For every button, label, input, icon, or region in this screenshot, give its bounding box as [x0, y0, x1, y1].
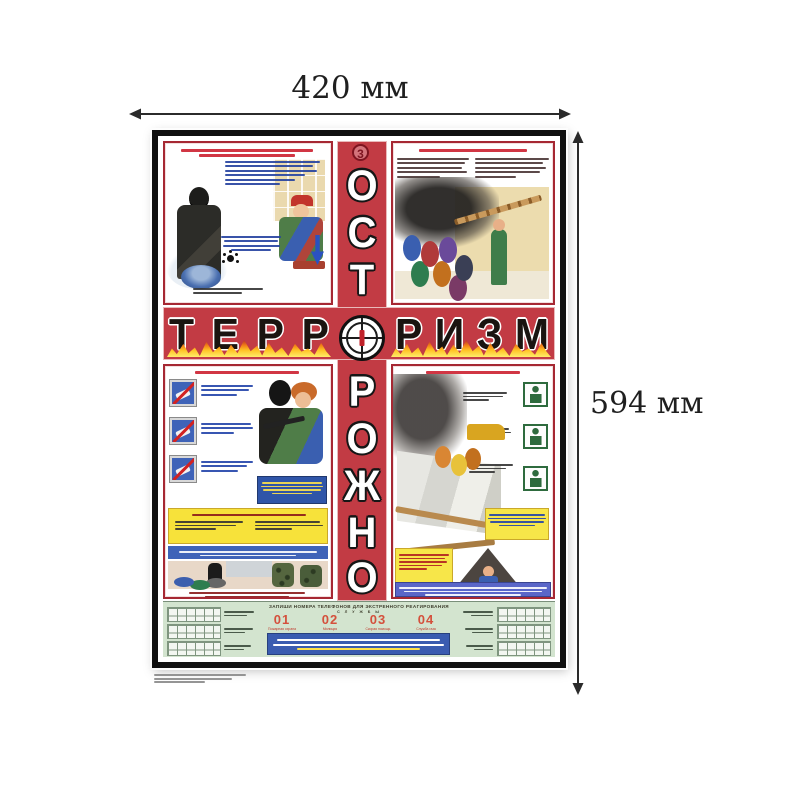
- yellow-note-box: [485, 508, 549, 540]
- service-label: Служба газа: [405, 627, 447, 631]
- text-line: [201, 465, 247, 467]
- text-line: [499, 525, 535, 527]
- width-dimension-label: 420 мм: [220, 70, 480, 106]
- caution-letter: О: [337, 554, 387, 603]
- text-line: [201, 427, 253, 429]
- terrorist-head: [269, 380, 291, 406]
- text-line: [224, 240, 278, 242]
- text-line: [255, 521, 320, 523]
- step-text: [463, 390, 507, 403]
- blue-caption-band: [168, 546, 328, 559]
- text-line: [255, 528, 292, 530]
- grid-label: [224, 609, 254, 618]
- notice-box: [267, 633, 450, 655]
- panel-hostage: [163, 364, 333, 599]
- caution-letter: Т: [337, 256, 387, 305]
- phone-grid: [497, 607, 551, 622]
- hostages-lying: [174, 577, 194, 587]
- grid-label: [224, 626, 254, 635]
- notice-line: [277, 639, 440, 641]
- text-line: [221, 236, 281, 238]
- height-arrow-icon: [569, 130, 587, 696]
- text-line: [469, 464, 513, 466]
- text-line: [201, 432, 234, 434]
- yellow-note-box: [395, 548, 453, 586]
- text-line: [397, 167, 462, 169]
- grid-label: [463, 626, 493, 635]
- service-label: Скорая помощь: [357, 627, 399, 631]
- text-line: [397, 171, 467, 173]
- text-line: [205, 596, 289, 598]
- text-line: [189, 592, 305, 594]
- caution-letter: Н: [337, 509, 387, 558]
- crowd-figures: [403, 235, 421, 261]
- text-line: [469, 468, 506, 470]
- service-item: 04 Служба газа: [405, 614, 447, 634]
- text-line: [397, 158, 469, 160]
- text-line: [466, 645, 493, 647]
- caption-text: [193, 285, 263, 297]
- excavator: [467, 424, 505, 440]
- text-line: [154, 681, 205, 683]
- text-line: [201, 470, 238, 472]
- hostage-notice-box: [257, 476, 327, 504]
- service-number: 03: [357, 614, 399, 626]
- sign-caption: [201, 420, 253, 436]
- panel-title: [413, 146, 533, 154]
- text-line: [399, 554, 449, 556]
- text-line: [225, 183, 280, 185]
- grid-label: [463, 643, 493, 652]
- prohibition-sign-icon: [170, 456, 196, 482]
- text-line: [463, 396, 503, 398]
- service-item: 02 Милиция: [309, 614, 351, 634]
- text-line: [474, 649, 494, 651]
- warning-text: [221, 233, 281, 254]
- text-line: [201, 423, 251, 425]
- service-item: 01 Пожарная охрана: [261, 614, 303, 634]
- wall-panel: [226, 561, 272, 577]
- text-line: [262, 482, 322, 484]
- text-line: [224, 615, 247, 617]
- phone-grid: [167, 607, 221, 622]
- text-line: [255, 525, 323, 527]
- text-line: [175, 528, 216, 530]
- text-line: [465, 628, 494, 630]
- prohibition-sign-icon: [170, 380, 196, 406]
- assault-scene: [168, 561, 328, 589]
- hostage-face: [295, 392, 311, 408]
- special-forces-soldier: [300, 565, 322, 587]
- panel-suspicious-object: [163, 141, 333, 305]
- service-number: 01: [261, 614, 303, 626]
- service-number: 02: [309, 614, 351, 626]
- crosshair-center-mark: [360, 330, 365, 346]
- sled: [293, 261, 325, 269]
- service-numbers-row: 01 Пожарная охрана 02 Милиция 03 Скорая …: [261, 614, 447, 634]
- rescue-pictogram-icon: [523, 466, 548, 491]
- product-photo: 420 мм 594 мм: [0, 0, 800, 800]
- publisher-imprint: [154, 672, 246, 685]
- text-line: [399, 565, 442, 567]
- text-line: [225, 161, 320, 163]
- text-line: [472, 632, 493, 634]
- service-label: Пожарная охрана: [261, 627, 303, 631]
- text-line: [154, 678, 232, 680]
- step-text: [469, 462, 513, 475]
- text-line: [397, 162, 465, 164]
- text-line: [181, 149, 313, 152]
- text-line: [193, 292, 242, 294]
- poster-sheet: 3 О С Т Р О Ж Н О Т Е Р Р Р: [152, 130, 566, 668]
- text-line: [224, 611, 254, 613]
- panel-evacuation: [391, 141, 555, 305]
- text-line: [225, 179, 295, 181]
- height-dimension-label: 594 мм: [590, 386, 703, 421]
- rescue-pictogram-icon: [523, 424, 548, 449]
- yellow-rules-band: [168, 508, 328, 544]
- panel-rubble-rescue: [391, 364, 555, 599]
- text-line: [419, 149, 527, 152]
- text-line: [223, 245, 280, 247]
- caution-letter: Ж: [337, 462, 387, 511]
- phone-grid: [497, 641, 551, 656]
- text-line: [261, 486, 324, 488]
- rule-item: [175, 519, 243, 532]
- rescue-pictogram-icon: [523, 382, 548, 407]
- text-line: [475, 167, 546, 169]
- bottom-blue-band: [395, 582, 551, 597]
- phone-grid: [167, 641, 221, 656]
- caution-band: 3 О С Т Р О Ж Н О: [337, 141, 387, 601]
- terrorist-standing: [208, 563, 222, 587]
- rescuer-head: [493, 219, 505, 231]
- panel-title: [191, 368, 303, 376]
- text-line: [175, 521, 243, 523]
- floor-illustration: [395, 271, 549, 299]
- text-line: [488, 518, 546, 520]
- text-line: [469, 471, 495, 473]
- emergency-phone-strip: ЗАПИШИ НОМЕРА ТЕЛЕФОНОВ ДЛЯ ЭКСТРЕННОГО …: [163, 601, 555, 657]
- text-line: [201, 461, 253, 463]
- text-line: [490, 521, 545, 523]
- text-line: [224, 649, 244, 651]
- grid-label: [224, 643, 254, 652]
- text-line: [399, 568, 427, 570]
- text-line: [224, 632, 245, 634]
- text-line: [192, 514, 306, 516]
- text-line: [199, 154, 294, 157]
- text-line: [201, 385, 253, 387]
- target-crosshair-icon: [339, 315, 385, 361]
- text-line: [471, 615, 494, 617]
- text-line: [425, 594, 520, 596]
- text-line: [272, 493, 313, 495]
- phone-grid: [167, 624, 221, 639]
- sign-caption: [201, 382, 253, 398]
- text-line: [399, 561, 447, 563]
- text-line: [475, 162, 543, 164]
- text-line: [225, 174, 305, 176]
- rescuer-figure: [491, 229, 507, 285]
- spider-object: [227, 255, 234, 262]
- service-item: 03 Скорая помощь: [357, 614, 399, 634]
- service-number: 04: [405, 614, 447, 626]
- collapsed-roof: [457, 548, 519, 586]
- text-line: [489, 514, 545, 516]
- grid-label: [463, 609, 493, 618]
- text-line: [200, 555, 296, 557]
- bottom-caption: [189, 590, 305, 599]
- text-line: [475, 171, 540, 173]
- text-line: [225, 165, 313, 167]
- text-line: [154, 674, 246, 676]
- text-line: [175, 525, 236, 527]
- service-label: Милиция: [309, 627, 351, 631]
- text-line: [231, 249, 272, 251]
- text-line: [224, 628, 253, 630]
- poster-content: 3 О С Т Р О Ж Н О Т Е Р Р Р: [163, 141, 555, 657]
- text-line: [475, 158, 549, 160]
- rescue-workers: [435, 446, 451, 468]
- special-forces-soldier: [272, 563, 294, 587]
- text-line: [463, 399, 489, 401]
- rules-title: [189, 511, 309, 518]
- text-line: [195, 371, 298, 374]
- caution-letter: С: [337, 209, 387, 258]
- phone-grid: [497, 624, 551, 639]
- text-line: [463, 611, 493, 613]
- caution-letter: О: [337, 162, 387, 211]
- text-line: [201, 394, 237, 396]
- instruction-text: [225, 158, 325, 188]
- text-line: [399, 558, 445, 560]
- notice-line: [297, 648, 420, 650]
- notice-line: [273, 644, 443, 646]
- text-line: [399, 587, 547, 589]
- hostage-illustration: [257, 376, 327, 472]
- prohibition-sign-icon: [170, 418, 196, 444]
- smoke-cloud: [393, 374, 467, 462]
- sign-caption: [201, 458, 253, 474]
- text-line: [179, 551, 317, 553]
- poster-number-badge: 3: [352, 144, 369, 161]
- rule-item: [255, 519, 323, 532]
- text-line: [263, 489, 320, 491]
- text-line: [193, 288, 263, 290]
- figures-bodies: [259, 408, 323, 464]
- text-line: [225, 170, 317, 172]
- text-line: [201, 389, 249, 391]
- caution-letter: Р: [337, 368, 387, 417]
- width-arrow-icon: [128, 105, 572, 123]
- caution-letter: О: [337, 415, 387, 464]
- text-line: [224, 645, 251, 647]
- text-line: [463, 392, 507, 394]
- text-line: [404, 591, 543, 593]
